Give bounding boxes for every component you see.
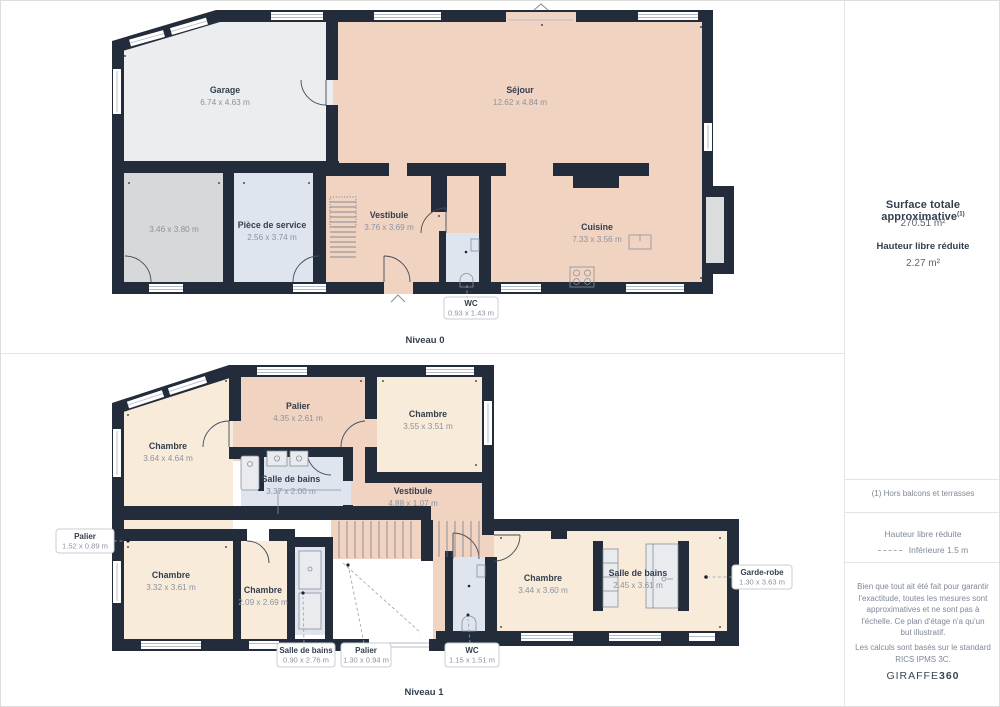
callout-wc1-dims: 1.15 x 1.51 m xyxy=(449,656,495,665)
callout-garde-robe-label: Garde-robe xyxy=(740,568,784,577)
sidebar-divider xyxy=(845,479,1000,480)
room-label-chambre-se: Chambre xyxy=(524,573,562,583)
room-dims-piece-de-service: 2.56 x 3.74 m xyxy=(247,233,297,242)
room-dims-garage: 6.74 x 4.63 m xyxy=(200,98,250,107)
room-sejour-cuisine-floor xyxy=(323,15,730,289)
callout-sdb-bas-label: Salle de bains xyxy=(279,646,333,655)
callout-wc1-label: WC xyxy=(465,646,479,655)
room-dims-palier-haut: 4.35 x 2.61 m xyxy=(273,414,323,423)
floor1-plan: Chambre 3.64 x 4.64 m Palier 4.35 x 2.61… xyxy=(56,365,792,698)
callout-wc0-dims: 0.93 x 1.43 m xyxy=(448,309,494,318)
room-label-chambre-sm: Chambre xyxy=(244,585,282,595)
callout-palier-bas-dims: 1.30 x 0.94 m xyxy=(343,656,389,665)
room-label-vestibule1: Vestibule xyxy=(394,486,433,496)
room-label-palier-haut: Palier xyxy=(286,401,311,411)
info-sidebar: Surface totale approximative(1) 270.51 m… xyxy=(844,1,1000,707)
callout-palier-gauche-dims: 1.52 x 0.89 m xyxy=(62,542,108,551)
room-label-sdb-est: Salle de bains xyxy=(609,568,668,578)
room-label-sejour: Séjour xyxy=(506,85,534,95)
footnote-marker: (1) xyxy=(957,211,965,217)
floor0-title: Niveau 0 xyxy=(405,335,444,346)
legend-title: Hauteur libre réduite xyxy=(845,529,1000,539)
room-label-garage: Garage xyxy=(210,85,240,95)
entry-arrow-bottom xyxy=(391,295,405,302)
room-wc0-floor xyxy=(446,233,481,289)
surface-total-value: 270.51 m² xyxy=(845,218,1000,229)
reduced-height-title: Hauteur libre réduite xyxy=(845,241,1000,252)
bathtub-icon xyxy=(241,456,259,490)
floorplan-page: Garage 6.74 x 4.63 m Séjour 12.62 x 4.84… xyxy=(0,0,1000,707)
room-dims-cuisine: 7.33 x 3.56 m xyxy=(572,235,622,244)
room-wc1-floor xyxy=(453,557,485,635)
room-label-piece-de-service: Pièce de service xyxy=(238,220,307,230)
window-bay xyxy=(704,197,724,263)
dashed-line-swatch xyxy=(878,550,902,552)
room-label-sdb-haut: Salle de bains xyxy=(262,474,321,484)
floor0-plan: Garage 6.74 x 4.63 m Séjour 12.62 x 4.84… xyxy=(112,4,734,346)
footnote-text: (1) Hors balcons et terrasses xyxy=(845,489,1000,498)
callout-garde-robe-dims: 1.30 x 3.63 m xyxy=(739,578,785,587)
sidebar-divider xyxy=(845,562,1000,563)
floor1-title: Niveau 1 xyxy=(404,687,444,698)
callout-wc0-label: WC xyxy=(464,299,478,308)
room-dims-sejour: 12.62 x 4.84 m xyxy=(493,98,547,107)
stairwell-void xyxy=(333,559,433,639)
callout-sdb-bas-dims: 0.90 x 2.76 m xyxy=(283,656,329,665)
callout-palier-bas-label: Palier xyxy=(355,646,377,655)
room-label-vestibule0: Vestibule xyxy=(370,210,409,220)
disclaimer-text: Bien que tout ait été fait pour garantir… xyxy=(855,581,991,639)
room-dims-chambre-nw: 3.64 x 4.64 m xyxy=(143,454,193,463)
room-chambre-ne-floor xyxy=(377,369,482,472)
room-label-chambre-nw: Chambre xyxy=(149,441,187,451)
room-dims-sdb-haut: 3.37 x 2.00 m xyxy=(266,487,316,496)
floor0-room-fills xyxy=(118,15,730,289)
floorplan-drawing: Garage 6.74 x 4.63 m Séjour 12.62 x 4.84… xyxy=(1,1,844,707)
callout-palier-gauche-label: Palier xyxy=(74,532,96,541)
reduced-height-value: 2.27 m² xyxy=(845,258,1000,269)
room-dims-storage: 3.46 x 3.80 m xyxy=(149,225,199,234)
plans-divider xyxy=(1,353,844,354)
terrace-opening xyxy=(506,12,576,22)
entry-door-gap xyxy=(384,282,413,294)
sidebar-divider xyxy=(845,512,1000,513)
stair-landing-floor xyxy=(331,519,426,561)
room-dims-chambre-se: 3.44 x 3.60 m xyxy=(518,586,568,595)
room-label-chambre-ne: Chambre xyxy=(409,409,447,419)
room-dims-chambre-sw: 3.32 x 3.61 m xyxy=(146,583,196,592)
room-dims-chambre-sm: 2.09 x 2.69 m xyxy=(238,598,288,607)
giraffe360-logo: GIRAFFE360 xyxy=(845,670,1000,682)
room-piece-de-service-floor xyxy=(234,171,313,289)
standard-text: Les calculs sont basés sur le standard R… xyxy=(855,642,991,665)
entry-arrow-top xyxy=(534,4,548,10)
room-dims-chambre-ne: 3.55 x 3.51 m xyxy=(403,422,453,431)
legend-item: Inférieure 1.5 m xyxy=(845,545,1000,555)
room-dims-vestibule1: 4.88 x 1.07 m xyxy=(388,499,438,508)
room-label-cuisine: Cuisine xyxy=(581,222,613,232)
room-dims-sdb-est: 2.45 x 3.61 m xyxy=(613,581,663,590)
room-dims-vestibule0: 3.76 x 3.69 m xyxy=(364,223,414,232)
room-label-chambre-sw: Chambre xyxy=(152,570,190,580)
